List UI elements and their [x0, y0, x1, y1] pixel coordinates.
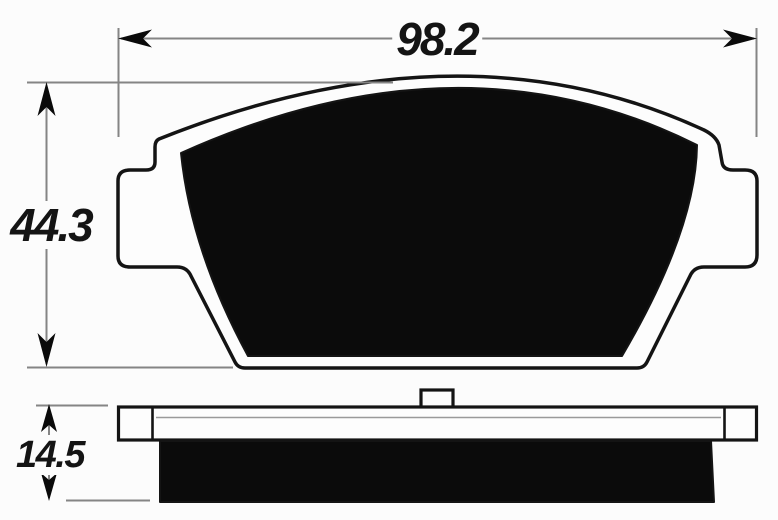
friction-material-front [181, 88, 697, 356]
drawing-svg [0, 0, 778, 520]
friction-material-side [160, 441, 714, 502]
front-view [118, 76, 757, 368]
side-locator-bump [421, 390, 453, 408]
brake-pad-technical-drawing: 98.2 44.3 14.5 [0, 0, 778, 520]
side-backing-plate [119, 407, 757, 440]
side-view [119, 390, 757, 502]
thickness-dimension-label: 14.5 [12, 435, 88, 475]
height-dimension-label: 44.3 [6, 201, 96, 249]
width-dimension-label: 98.2 [392, 15, 482, 63]
